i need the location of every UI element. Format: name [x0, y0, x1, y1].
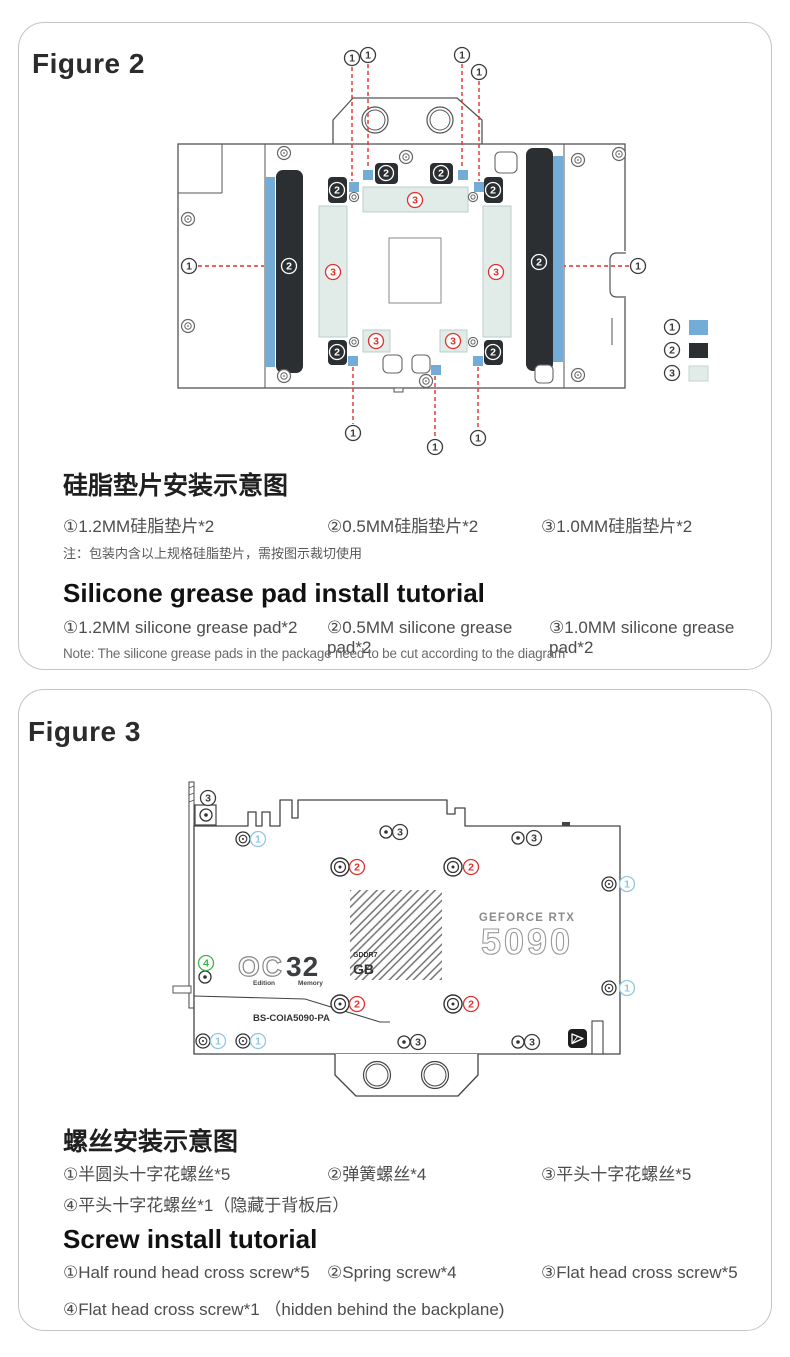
svg-text:1: 1	[349, 53, 355, 65]
legend-swatch-1	[689, 320, 708, 335]
svg-text:3: 3	[412, 195, 418, 207]
diagram-marker-1: 1	[361, 48, 376, 63]
memory-label: Memory	[298, 980, 323, 987]
diagram-marker-3: 3	[201, 791, 216, 806]
screw-item-1-zh: ①半圆头十字花螺丝*5	[63, 1160, 327, 1185]
svg-text:2: 2	[354, 862, 360, 874]
svg-text:3: 3	[330, 267, 336, 279]
svg-text:3: 3	[669, 368, 675, 380]
svg-text:4: 4	[203, 958, 209, 970]
diagram-marker-3: 3	[527, 831, 542, 846]
svg-text:1: 1	[624, 879, 630, 891]
svg-text:3: 3	[450, 336, 456, 348]
figure2-heading-zh: 硅脂垫片安装示意图	[63, 466, 288, 502]
svg-text:1: 1	[186, 261, 192, 273]
svg-text:1: 1	[255, 834, 261, 846]
diagram-marker-1: 1	[428, 440, 443, 455]
brand-logo-icon	[568, 1029, 587, 1048]
screw-item-1-en: ①Half round head cross screw*5	[63, 1263, 327, 1283]
svg-text:2: 2	[468, 999, 474, 1011]
figure2-diagram: 1111111113333322222222123	[0, 0, 790, 460]
svg-text:1: 1	[669, 322, 675, 334]
pad-item-3-zh: ③1.0MM硅脂垫片*2	[541, 512, 763, 537]
diagram-marker-3: 3	[408, 193, 423, 208]
svg-text:3: 3	[373, 336, 379, 348]
svg-text:2: 2	[286, 261, 292, 273]
pad-legend	[689, 320, 708, 381]
diagram-marker-3: 3	[369, 334, 384, 349]
svg-text:2: 2	[354, 999, 360, 1011]
manual-page: Figure 2	[0, 0, 790, 1357]
diagram-marker-1: 1	[251, 1034, 266, 1049]
figure3-heading-en: Screw install tutorial	[63, 1224, 317, 1255]
diagram-marker-1: 1	[472, 65, 487, 80]
pad-item-3-en: ③1.0MM silicone grease pad*2	[549, 618, 763, 658]
gb-label: GB	[353, 961, 374, 977]
svg-text:1: 1	[350, 428, 356, 440]
figure2-items-zh: ①1.2MM硅脂垫片*2 ②0.5MM硅脂垫片*2 ③1.0MM硅脂垫片*2	[63, 512, 763, 537]
svg-text:2: 2	[490, 347, 496, 359]
diagram-marker-3: 3	[393, 825, 408, 840]
diagram-marker-1: 1	[665, 320, 680, 335]
figure2-heading-en: Silicone grease pad install tutorial	[63, 578, 485, 609]
figure2-note-zh: 注：包装内含以上规格硅脂垫片，需按图示裁切使用	[63, 543, 362, 562]
pci-bracket	[173, 782, 194, 1008]
svg-text:2: 2	[438, 168, 444, 180]
diagram-marker-2: 2	[464, 997, 479, 1012]
svg-text:1: 1	[459, 50, 465, 62]
diagram-marker-1: 1	[345, 51, 360, 66]
diagram-marker-1: 1	[471, 431, 486, 446]
diagram-marker-3: 3	[446, 334, 461, 349]
terminal-bottom	[335, 1054, 478, 1096]
figure3-heading-zh: 螺丝安装示意图	[63, 1122, 238, 1158]
svg-text:3: 3	[415, 1037, 421, 1049]
diagram-marker-1: 1	[251, 832, 266, 847]
diagram-marker-1: 1	[631, 259, 646, 274]
diagram-marker-2: 2	[464, 860, 479, 875]
legend-swatch-2	[689, 343, 708, 358]
board-code-label: BS-COIA5090-PA	[253, 1013, 330, 1024]
pad-item-1-zh: ①1.2MM硅脂垫片*2	[63, 512, 327, 537]
svg-text:1: 1	[432, 442, 438, 454]
diagram-marker-1: 1	[620, 981, 635, 996]
diagram-marker-1: 1	[346, 426, 361, 441]
gddr7-label: GDDR7	[353, 952, 378, 959]
svg-text:3: 3	[493, 267, 499, 279]
svg-text:2: 2	[468, 862, 474, 874]
legend-swatch-3	[689, 366, 708, 381]
figure2-note-en: Note: The silicone grease pads in the pa…	[63, 646, 565, 661]
svg-text:3: 3	[205, 793, 211, 805]
diagram-marker-3: 3	[489, 265, 504, 280]
diagram-marker-1: 1	[455, 48, 470, 63]
oc-label: OC	[238, 951, 284, 982]
water-block-terminal	[333, 98, 482, 146]
svg-text:2: 2	[669, 345, 675, 357]
svg-text:1: 1	[635, 261, 641, 273]
svg-text:2: 2	[536, 257, 542, 269]
svg-text:1: 1	[215, 1036, 221, 1048]
figure3-items-zh: ①半圆头十字花螺丝*5 ②弹簧螺丝*4 ③平头十字花螺丝*5	[63, 1160, 763, 1185]
svg-text:1: 1	[475, 433, 481, 445]
mem-size-label: 32	[286, 951, 319, 982]
diagram-marker-3: 3	[525, 1035, 540, 1050]
screw-item-3-zh: ③平头十字花螺丝*5	[541, 1160, 763, 1185]
diagram-marker-4: 4	[199, 956, 214, 971]
svg-text:2: 2	[383, 168, 389, 180]
diagram-marker-3: 3	[326, 265, 341, 280]
svg-text:1: 1	[365, 50, 371, 62]
diagram-marker-2: 2	[350, 860, 365, 875]
diagram-marker-1: 1	[211, 1034, 226, 1049]
screw-item-4-en: ④Flat head cross screw*1 （hidden behind …	[63, 1295, 504, 1320]
diagram-marker-2: 2	[350, 997, 365, 1012]
screw-item-4-zh: ④平头十字花螺丝*1（隐藏于背板后）	[63, 1191, 349, 1216]
svg-text:2: 2	[334, 347, 340, 359]
diagram-marker-2: 2	[665, 343, 680, 358]
screw-item-2-zh: ②弹簧螺丝*4	[327, 1160, 541, 1185]
svg-text:1: 1	[255, 1036, 261, 1048]
figure3-items-en: ①Half round head cross screw*5 ②Spring s…	[63, 1263, 763, 1283]
diagram-marker-1: 1	[182, 259, 197, 274]
pad-item-2-zh: ②0.5MM硅脂垫片*2	[327, 512, 541, 537]
svg-text:1: 1	[624, 983, 630, 995]
diagram-marker-3: 3	[665, 366, 680, 381]
svg-text:3: 3	[529, 1037, 535, 1049]
screw-item-2-en: ②Spring screw*4	[327, 1263, 541, 1283]
svg-text:3: 3	[397, 827, 403, 839]
svg-text:1: 1	[476, 67, 482, 79]
diagram-marker-1: 1	[620, 877, 635, 892]
gpu-die	[389, 238, 441, 303]
diagram-marker-3: 3	[411, 1035, 426, 1050]
edition-label: Edition	[253, 980, 275, 987]
svg-text:2: 2	[334, 185, 340, 197]
screw-item-3-en: ③Flat head cross screw*5	[541, 1263, 763, 1283]
svg-text:3: 3	[531, 833, 537, 845]
figure3-diagram: GEFORCE RTX 5090 OC 32 GDDR7 GB Edition …	[0, 690, 790, 1120]
svg-text:2: 2	[490, 185, 496, 197]
gpu-model-label: 5090	[481, 921, 573, 962]
